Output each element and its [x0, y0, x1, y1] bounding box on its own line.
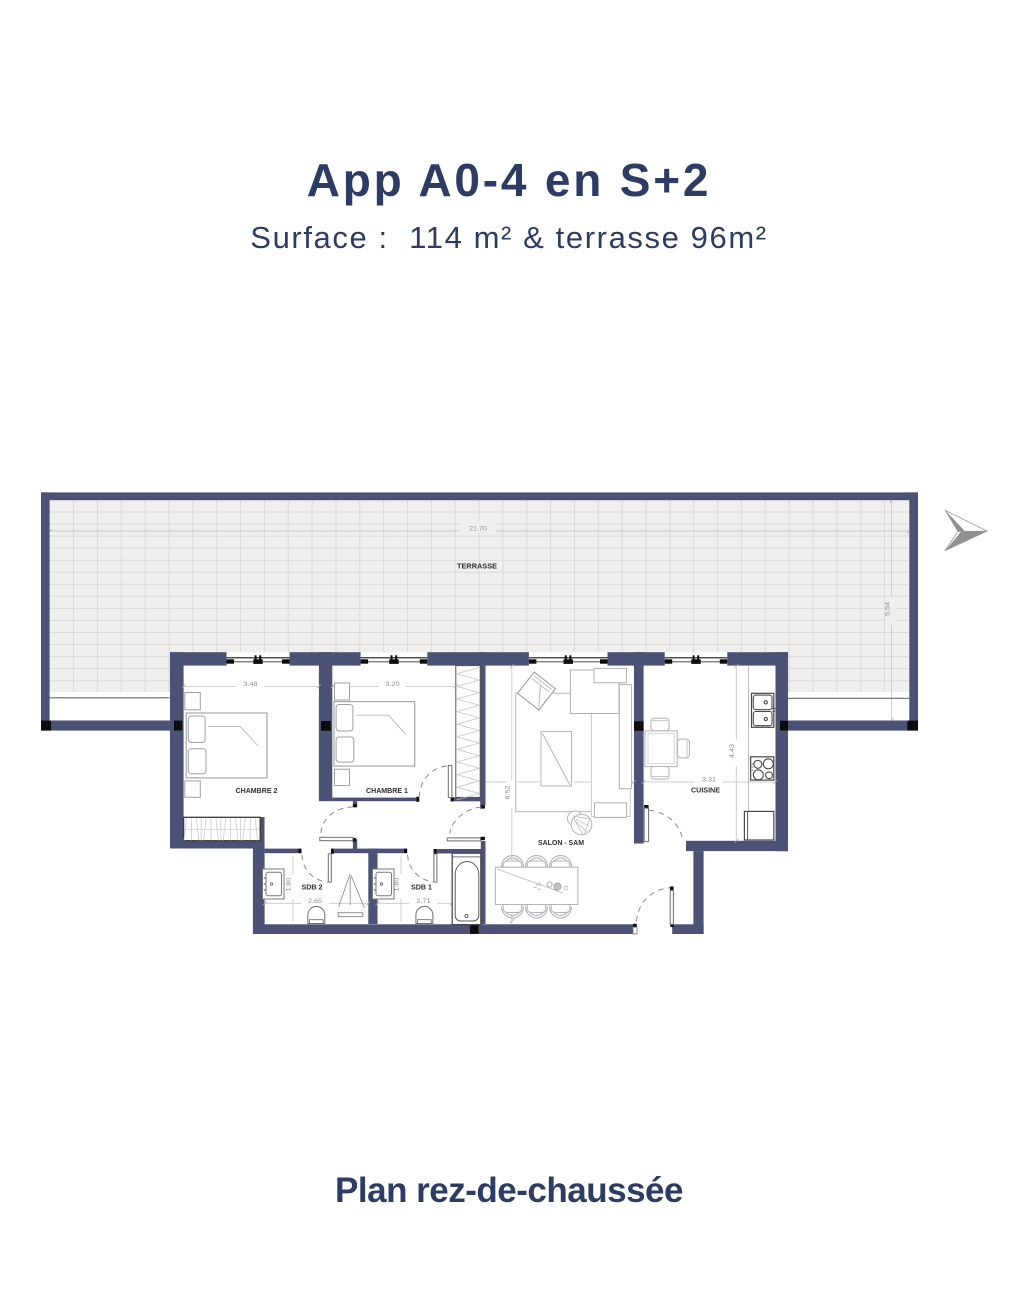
svg-text:3.31: 3.31	[702, 776, 716, 783]
svg-text:CHAMBRE 1: CHAMBRE 1	[366, 788, 408, 795]
svg-text:TERRASSE: TERRASSE	[457, 562, 497, 571]
svg-text:5.54: 5.54	[885, 602, 892, 616]
svg-text:2.65: 2.65	[308, 898, 322, 905]
svg-text:3.48: 3.48	[244, 681, 258, 688]
svg-text:CHAMBRE 2: CHAMBRE 2	[236, 788, 278, 795]
svg-text:1.80: 1.80	[286, 877, 293, 891]
svg-text:21.70: 21.70	[469, 526, 487, 533]
svg-text:6.52: 6.52	[504, 785, 511, 799]
svg-text:2.71: 2.71	[417, 898, 431, 905]
svg-text:SDB 1: SDB 1	[411, 885, 432, 892]
svg-text:SDB 2: SDB 2	[302, 885, 323, 892]
svg-text:SALON - SAM: SALON - SAM	[538, 840, 584, 847]
svg-text:4.43: 4.43	[729, 744, 736, 758]
svg-text:3.20: 3.20	[386, 681, 400, 688]
svg-text:CUISINE: CUISINE	[691, 788, 720, 795]
svg-text:1.80: 1.80	[394, 877, 401, 891]
